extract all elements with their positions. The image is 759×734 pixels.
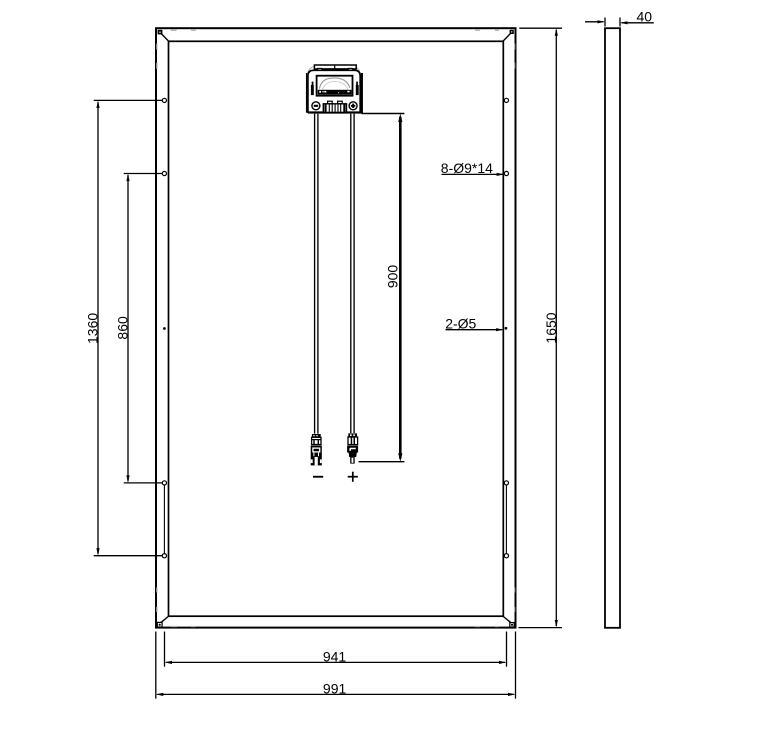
svg-text:2-Ø5: 2-Ø5 bbox=[445, 315, 476, 331]
svg-text:860: 860 bbox=[115, 316, 131, 340]
svg-text:1360: 1360 bbox=[85, 313, 101, 344]
svg-text:8-Ø9*14: 8-Ø9*14 bbox=[441, 160, 493, 176]
svg-text:1650: 1650 bbox=[543, 312, 559, 343]
svg-text:900: 900 bbox=[385, 265, 401, 289]
svg-text:991: 991 bbox=[323, 680, 347, 696]
svg-text:941: 941 bbox=[323, 648, 347, 664]
svg-text:40: 40 bbox=[637, 9, 653, 25]
